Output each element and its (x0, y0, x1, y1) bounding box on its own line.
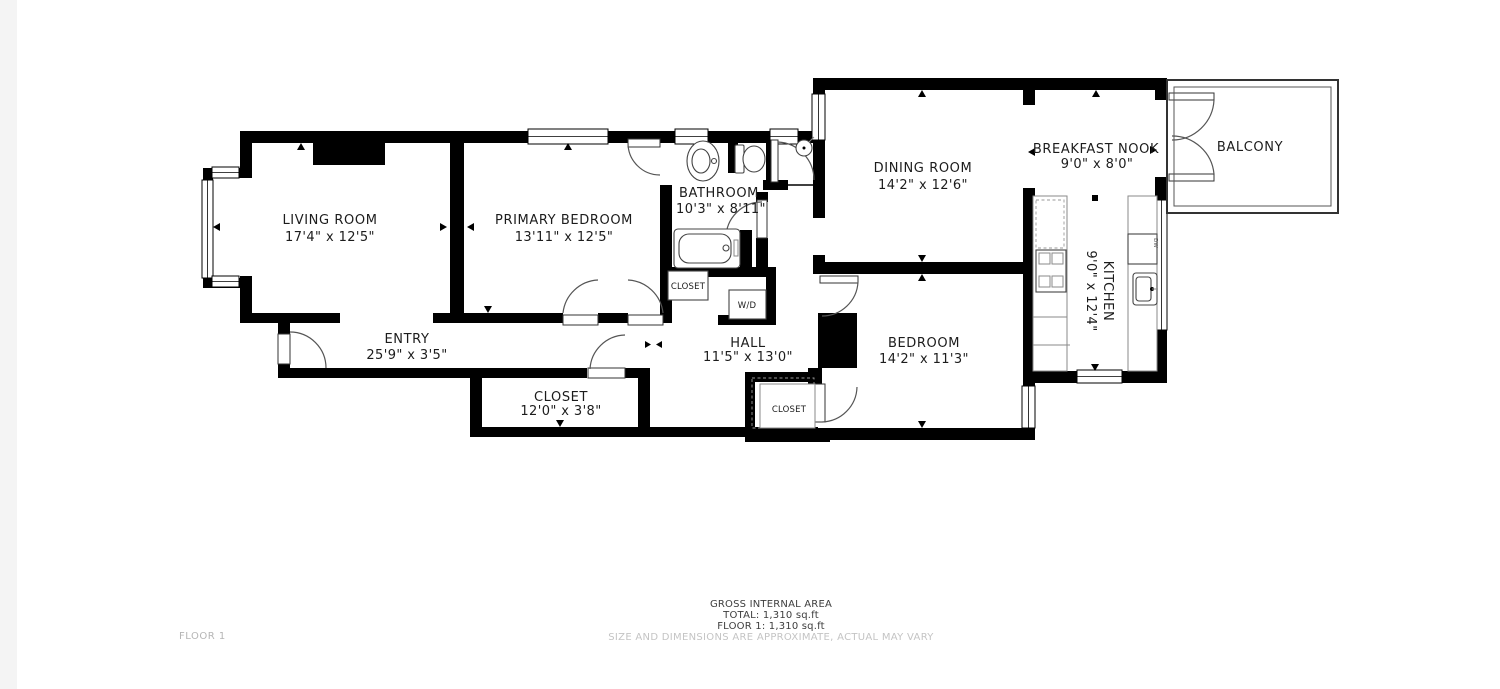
living-room-label: LIVING ROOM (282, 213, 377, 228)
kitchen-dims: 9'0" x 12'4" (1083, 250, 1098, 331)
window (1077, 370, 1122, 383)
bathroom-sink (687, 141, 719, 181)
floor-tag: FLOOR 1 (179, 631, 226, 642)
fireplace-block (313, 143, 385, 165)
hall-closet-door (588, 335, 625, 378)
bedroom-closet-door (815, 384, 857, 422)
floor1-area: FLOOR 1: 1,310 sq.ft (717, 621, 825, 632)
breakfast-nook-dims: 9'0" x 8'0" (1061, 157, 1134, 172)
stove (1036, 250, 1066, 292)
breakfast-nook-label: BREAKFAST NOOK (1033, 142, 1159, 157)
floorplan-page: LIVING ROOM 17'4" x 12'5" PRIMARY BEDROO… (0, 0, 1500, 689)
bathtub (674, 229, 740, 268)
window (1156, 200, 1167, 330)
dining-room-label: DINING ROOM (874, 161, 973, 176)
bedroom-label: BEDROOM (888, 336, 960, 351)
footer: GROSS INTERNAL AREA TOTAL: 1,310 sq.ft F… (179, 599, 934, 643)
dining-room-dims: 14'2" x 12'6" (878, 178, 968, 193)
total-area: TOTAL: 1,310 sq.ft (722, 610, 819, 621)
primary-bedroom-door (563, 280, 598, 325)
primary-bedroom-dims: 13'11" x 12'5" (515, 230, 614, 245)
kitchen-sink (1133, 273, 1158, 305)
living-room-dims: 17'4" x 12'5" (285, 230, 375, 245)
entry-label: ENTRY (384, 332, 429, 347)
balcony-label: BALCONY (1217, 140, 1283, 155)
bathroom-closet-label: CLOSET (671, 282, 706, 292)
kitchen-label: KITCHEN (1100, 261, 1115, 322)
duct-block (818, 313, 857, 368)
bathroom-label: BATHROOM (679, 186, 759, 201)
entry-dims: 25'9" x 3'5" (366, 348, 447, 363)
primary-bedroom-label: PRIMARY BEDROOM (495, 213, 633, 228)
bedroom-dims: 14'2" x 11'3" (879, 352, 969, 367)
window (1022, 386, 1035, 428)
closet-dims: 12'0" x 3'8" (520, 404, 601, 419)
window (812, 94, 825, 140)
bedroom-closet-label: CLOSET (772, 405, 807, 415)
toilet (735, 145, 765, 173)
entry-front-door (278, 332, 326, 368)
window (528, 129, 608, 144)
bathroom-dims: 10'3" x 8'11" (676, 202, 766, 217)
bedroom-closet-box (752, 378, 815, 428)
hall-label: HALL (730, 336, 766, 351)
bedroom-door (820, 276, 858, 316)
primary-bath-door (628, 139, 660, 175)
bath-nook-door (628, 280, 663, 325)
kitchen-right-counter (1128, 196, 1158, 371)
dishwasher-label: DW (1152, 238, 1158, 248)
disclaimer: SIZE AND DIMENSIONS ARE APPROXIMATE, ACT… (608, 632, 934, 643)
floorplan-svg: LIVING ROOM 17'4" x 12'5" PRIMARY BEDROO… (0, 0, 1500, 689)
closet-label: CLOSET (534, 390, 588, 405)
balcony-french-doors (1169, 93, 1214, 181)
hall-dims: 11'5" x 13'0" (703, 350, 793, 365)
gross-internal-area: GROSS INTERNAL AREA (710, 599, 832, 610)
bay-window (202, 167, 239, 287)
washer-dryer-label: W/D (738, 301, 757, 311)
kitchen-left-counter (1033, 196, 1070, 371)
